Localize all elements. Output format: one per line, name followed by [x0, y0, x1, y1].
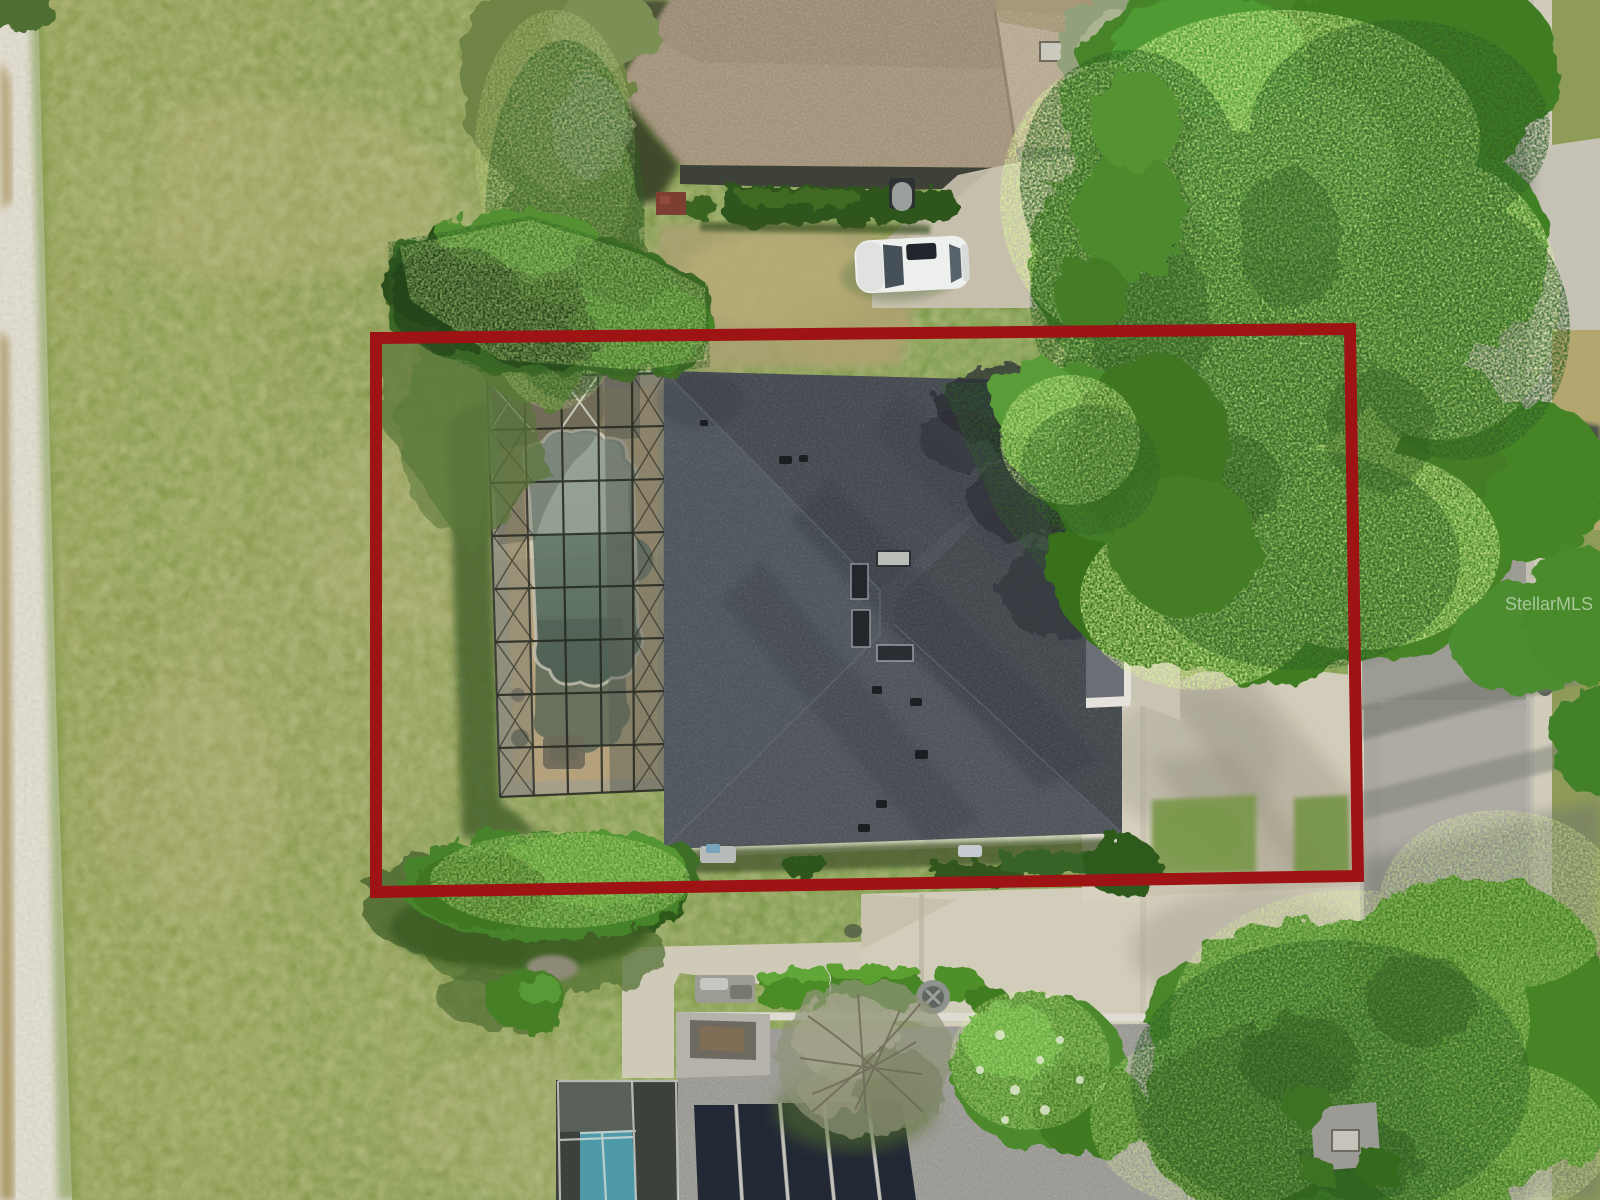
svg-text:StellarMLS: StellarMLS: [1505, 594, 1593, 614]
